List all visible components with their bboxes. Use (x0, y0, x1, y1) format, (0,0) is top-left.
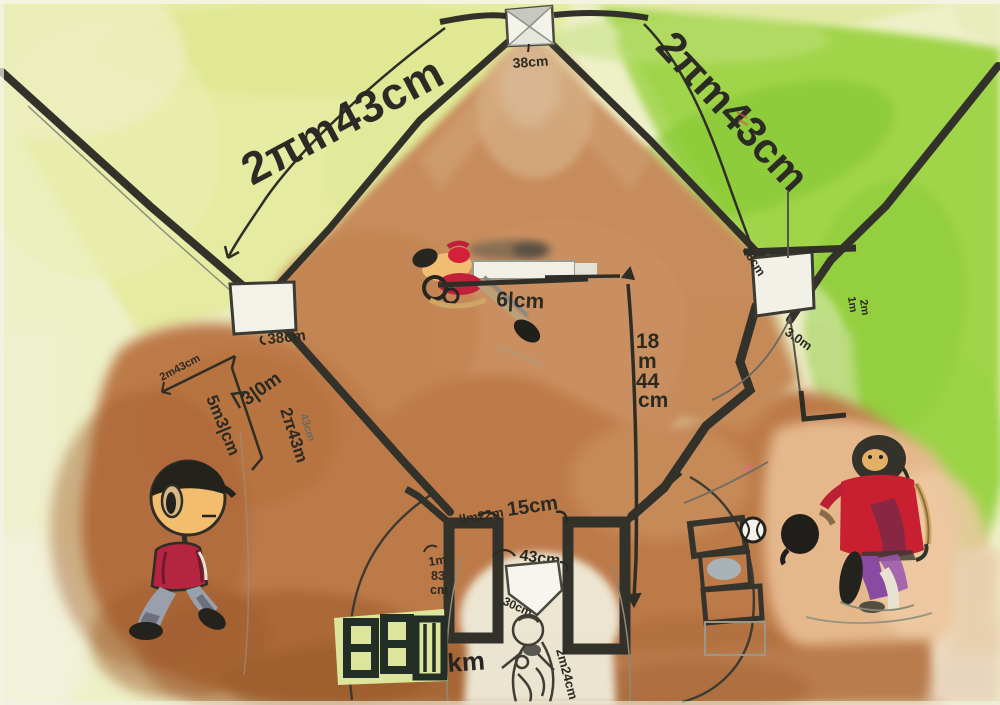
svg-text:6|cm: 6|cm (496, 288, 545, 313)
svg-text:1m: 1m (845, 296, 859, 314)
svg-text:2m: 2m (857, 299, 871, 317)
svg-text:83: 83 (431, 569, 445, 583)
svg-text:cm: cm (430, 583, 448, 597)
svg-text:km: km (446, 645, 486, 678)
svg-text:38cm: 38cm (512, 53, 549, 71)
svg-text:cm: cm (638, 389, 668, 412)
svg-text:1m: 1m (427, 553, 447, 569)
